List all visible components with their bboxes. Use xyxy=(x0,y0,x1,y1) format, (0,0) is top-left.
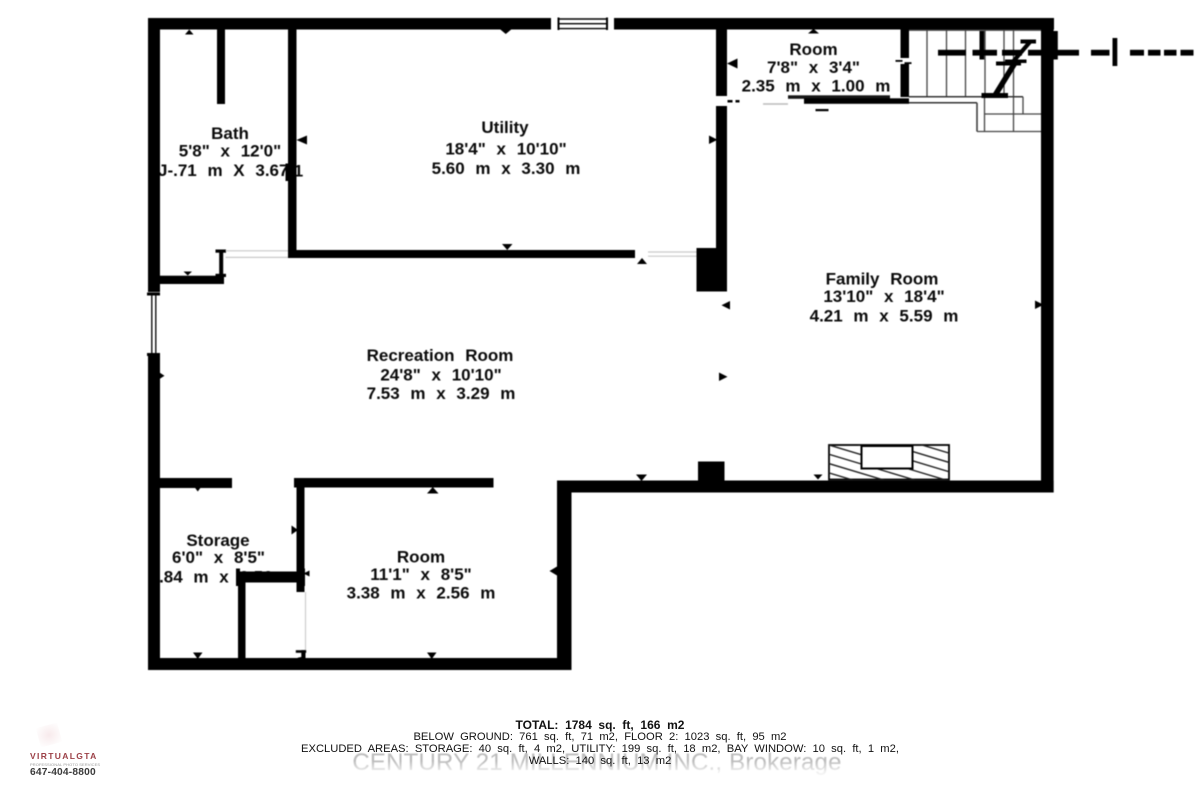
svg-text:Bath: Bath xyxy=(211,124,249,143)
svg-text:Utility: Utility xyxy=(481,118,529,137)
svg-text:2.35 m x 1.00 m: 2.35 m x 1.00 m xyxy=(742,77,891,96)
svg-text:7'8" x 3'4": 7'8" x 3'4" xyxy=(767,58,860,77)
svg-text:4.21 m x 5.59 m: 4.21 m x 5.59 m xyxy=(810,307,959,326)
svg-text:24'8" x 10'10": 24'8" x 10'10" xyxy=(380,366,501,385)
svg-text:5.60 m x 3.30 m: 5.60 m x 3.30 m xyxy=(432,159,581,178)
svg-text:J-.71 m X 3.67: J-.71 m X 3.67 xyxy=(158,161,288,180)
svg-text:11'1" x 8'5": 11'1" x 8'5" xyxy=(370,565,471,584)
svg-text:6'0" x 8'5": 6'0" x 8'5" xyxy=(172,548,265,567)
svg-text:7.53 m x 3.29 m: 7.53 m x 3.29 m xyxy=(367,384,516,403)
svg-text:Room: Room xyxy=(397,548,445,567)
svg-text:13'10" x 18'4": 13'10" x 18'4" xyxy=(823,287,944,306)
svg-text:18'4" x 10'10": 18'4" x 10'10" xyxy=(445,140,566,159)
svg-text:Recreation Room: Recreation Room xyxy=(367,346,514,365)
svg-text:5'8" x 12'0": 5'8" x 12'0" xyxy=(179,142,281,161)
svg-text:Family Room: Family Room xyxy=(826,270,939,289)
svg-text:Room: Room xyxy=(789,40,837,59)
svg-text:3.38 m x 2.56 m: 3.38 m x 2.56 m xyxy=(347,584,496,603)
